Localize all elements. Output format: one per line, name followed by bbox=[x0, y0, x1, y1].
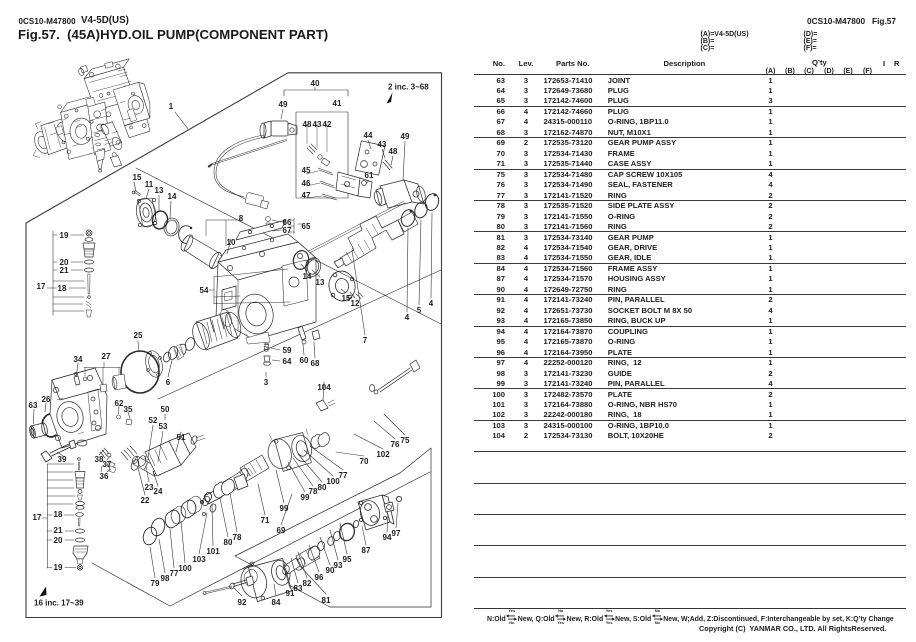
svg-text:4: 4 bbox=[405, 313, 410, 322]
svg-text:13: 13 bbox=[155, 186, 164, 195]
svg-text:99: 99 bbox=[280, 504, 289, 513]
svg-text:80: 80 bbox=[318, 483, 327, 492]
svg-text:42: 42 bbox=[323, 120, 332, 129]
svg-text:39: 39 bbox=[58, 455, 67, 464]
svg-text:78: 78 bbox=[233, 533, 242, 542]
svg-text:24: 24 bbox=[154, 487, 163, 496]
svg-text:12: 12 bbox=[351, 299, 360, 308]
svg-text:63: 63 bbox=[29, 401, 38, 410]
svg-text:70: 70 bbox=[360, 457, 369, 466]
svg-text:36: 36 bbox=[100, 472, 109, 481]
svg-text:4: 4 bbox=[429, 299, 434, 308]
svg-text:6: 6 bbox=[166, 378, 171, 387]
svg-text:61: 61 bbox=[365, 171, 374, 180]
svg-text:45: 45 bbox=[302, 166, 311, 175]
svg-text:76: 76 bbox=[391, 440, 400, 449]
svg-text:65: 65 bbox=[302, 222, 311, 231]
svg-text:101: 101 bbox=[206, 547, 220, 556]
svg-text:52: 52 bbox=[149, 416, 158, 425]
svg-text:87: 87 bbox=[362, 546, 371, 555]
svg-text:64: 64 bbox=[283, 357, 292, 366]
svg-text:50: 50 bbox=[161, 405, 170, 414]
svg-text:98: 98 bbox=[161, 574, 170, 583]
svg-text:19: 19 bbox=[60, 231, 69, 240]
svg-text:40: 40 bbox=[311, 79, 320, 88]
svg-text:60: 60 bbox=[300, 356, 309, 365]
svg-text:79: 79 bbox=[151, 579, 160, 588]
svg-text:53: 53 bbox=[159, 422, 168, 431]
svg-text:10: 10 bbox=[227, 238, 236, 247]
svg-text:84: 84 bbox=[272, 598, 281, 607]
svg-text:71: 71 bbox=[261, 516, 270, 525]
svg-text:97: 97 bbox=[392, 529, 401, 538]
svg-text:17: 17 bbox=[33, 513, 42, 522]
svg-text:104: 104 bbox=[317, 383, 331, 392]
svg-text:18: 18 bbox=[58, 284, 67, 293]
svg-text:103: 103 bbox=[192, 555, 206, 564]
svg-text:43: 43 bbox=[313, 120, 322, 129]
svg-text:16 inc. 17~39: 16 inc. 17~39 bbox=[34, 599, 84, 608]
svg-text:43: 43 bbox=[378, 140, 387, 149]
svg-text:15: 15 bbox=[133, 173, 142, 182]
svg-text:99: 99 bbox=[301, 493, 310, 502]
svg-text:77: 77 bbox=[170, 569, 179, 578]
svg-text:46: 46 bbox=[302, 179, 311, 188]
svg-text:2 inc. 3~68: 2 inc. 3~68 bbox=[388, 83, 429, 92]
svg-text:34: 34 bbox=[74, 355, 83, 364]
svg-text:22: 22 bbox=[141, 496, 150, 505]
svg-text:54: 54 bbox=[200, 286, 209, 295]
svg-text:44: 44 bbox=[364, 131, 373, 140]
svg-text:51: 51 bbox=[177, 433, 186, 442]
svg-text:49: 49 bbox=[279, 100, 288, 109]
svg-text:11: 11 bbox=[145, 180, 154, 189]
svg-text:100: 100 bbox=[326, 477, 340, 486]
svg-text:48: 48 bbox=[303, 120, 312, 129]
svg-text:5: 5 bbox=[417, 306, 422, 315]
svg-text:18: 18 bbox=[54, 510, 63, 519]
svg-text:8: 8 bbox=[239, 214, 244, 223]
svg-text:13: 13 bbox=[316, 278, 325, 287]
svg-text:102: 102 bbox=[376, 450, 390, 459]
svg-text:67: 67 bbox=[283, 226, 292, 235]
svg-text:80: 80 bbox=[224, 538, 233, 547]
svg-text:47: 47 bbox=[302, 191, 311, 200]
svg-text:48: 48 bbox=[389, 147, 398, 156]
svg-text:17: 17 bbox=[37, 282, 46, 291]
svg-text:3: 3 bbox=[264, 378, 269, 387]
svg-text:77: 77 bbox=[339, 471, 348, 480]
svg-text:21: 21 bbox=[54, 526, 63, 535]
svg-text:68: 68 bbox=[311, 359, 320, 368]
svg-text:25: 25 bbox=[134, 331, 143, 340]
svg-text:95: 95 bbox=[343, 555, 352, 564]
svg-text:41: 41 bbox=[333, 99, 342, 108]
svg-text:69: 69 bbox=[277, 526, 286, 535]
svg-text:21: 21 bbox=[60, 266, 69, 275]
svg-text:14: 14 bbox=[168, 192, 177, 201]
svg-text:78: 78 bbox=[309, 487, 318, 496]
svg-text:20: 20 bbox=[54, 536, 63, 545]
svg-text:82: 82 bbox=[303, 579, 312, 588]
svg-text:92: 92 bbox=[238, 598, 247, 607]
svg-text:59: 59 bbox=[283, 346, 292, 355]
svg-text:81: 81 bbox=[322, 596, 331, 605]
svg-text:96: 96 bbox=[315, 573, 324, 582]
svg-text:37: 37 bbox=[103, 460, 112, 469]
svg-text:1: 1 bbox=[169, 102, 174, 111]
svg-text:35: 35 bbox=[124, 405, 133, 414]
svg-text:26: 26 bbox=[42, 395, 51, 404]
svg-text:27: 27 bbox=[102, 352, 111, 361]
svg-text:49: 49 bbox=[401, 132, 410, 141]
svg-text:7: 7 bbox=[363, 336, 368, 345]
svg-text:14: 14 bbox=[303, 272, 312, 281]
svg-text:19: 19 bbox=[54, 563, 63, 572]
svg-text:100: 100 bbox=[178, 564, 192, 573]
svg-text:75: 75 bbox=[401, 436, 410, 445]
